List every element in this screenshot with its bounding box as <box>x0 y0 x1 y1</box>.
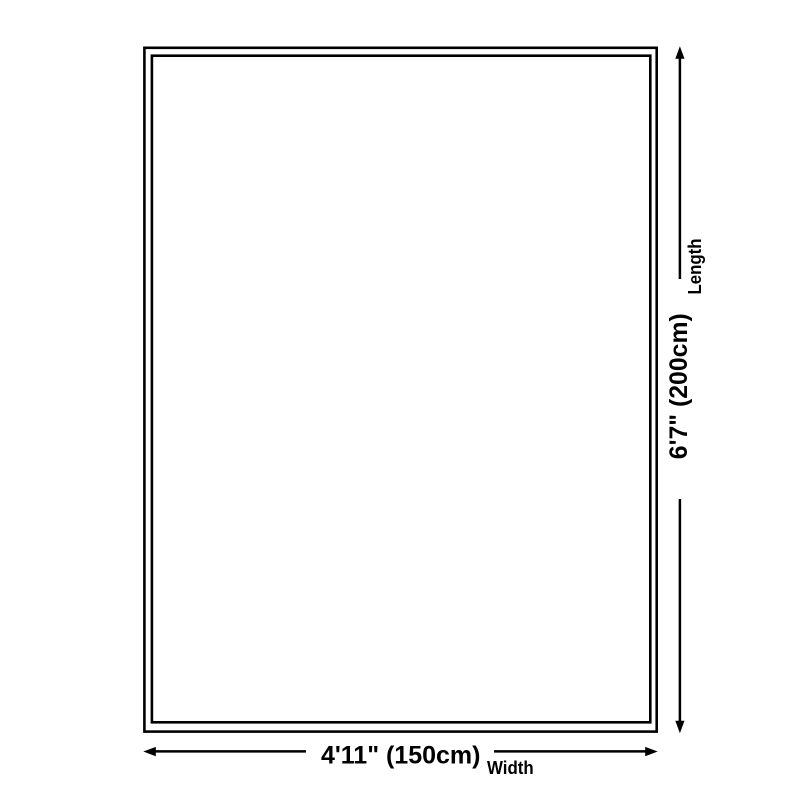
svg-text:4'11" (150cm): 4'11" (150cm) <box>321 742 481 770</box>
svg-text:Width: Width <box>487 758 534 778</box>
svg-text:Length: Length <box>685 239 705 295</box>
svg-text:6'7" (200cm): 6'7" (200cm) <box>665 313 693 459</box>
